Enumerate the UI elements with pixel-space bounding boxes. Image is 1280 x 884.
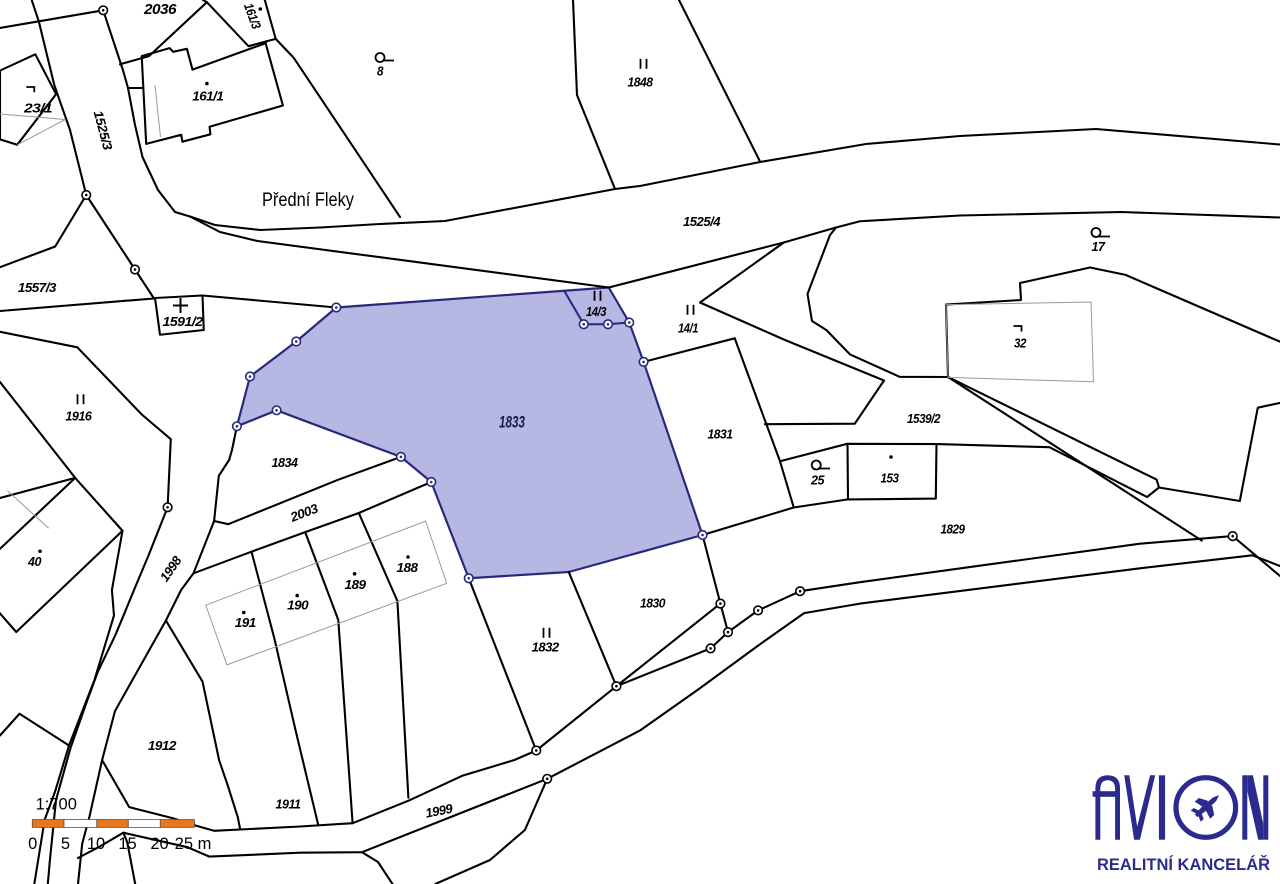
svg-text:32: 32 [1014, 336, 1027, 351]
svg-text:1912: 1912 [148, 738, 177, 753]
svg-text:20: 20 [150, 835, 168, 853]
svg-text:1:700: 1:700 [36, 796, 77, 814]
svg-text:0: 0 [28, 835, 37, 853]
svg-text:1539/2: 1539/2 [907, 411, 941, 426]
svg-text:14/1: 14/1 [678, 321, 698, 336]
svg-text:188: 188 [397, 560, 419, 575]
svg-text:15: 15 [118, 835, 136, 853]
svg-text:17: 17 [1092, 239, 1106, 254]
svg-text:1591/2: 1591/2 [163, 314, 204, 329]
svg-text:23/1: 23/1 [23, 100, 53, 115]
svg-text:1831: 1831 [708, 426, 733, 441]
svg-text:153: 153 [881, 471, 900, 486]
svg-text:25 m: 25 m [175, 835, 212, 853]
svg-text:25: 25 [810, 473, 825, 488]
svg-text:10: 10 [87, 835, 105, 853]
svg-text:2036: 2036 [143, 1, 177, 18]
svg-text:1525/4: 1525/4 [683, 214, 721, 229]
svg-text:Přední Fleky: Přední Fleky [262, 190, 354, 211]
svg-text:191: 191 [235, 615, 256, 630]
svg-text:189: 189 [345, 577, 367, 592]
svg-text:40: 40 [27, 554, 42, 569]
svg-text:161/1: 161/1 [192, 89, 223, 104]
svg-text:REALITNÍ KANCELÁŘ: REALITNÍ KANCELÁŘ [1097, 855, 1270, 874]
svg-text:1911: 1911 [276, 797, 301, 812]
svg-text:1916: 1916 [65, 409, 92, 424]
svg-text:1829: 1829 [941, 522, 966, 537]
svg-text:1557/3: 1557/3 [18, 280, 57, 295]
svg-text:1834: 1834 [272, 455, 299, 470]
svg-text:1848: 1848 [628, 75, 654, 90]
svg-text:1830: 1830 [640, 596, 666, 611]
svg-text:5: 5 [61, 835, 70, 853]
svg-text:190: 190 [287, 598, 309, 613]
svg-text:14/3: 14/3 [586, 304, 607, 319]
svg-text:1832: 1832 [532, 640, 560, 655]
svg-text:1833: 1833 [499, 414, 525, 432]
